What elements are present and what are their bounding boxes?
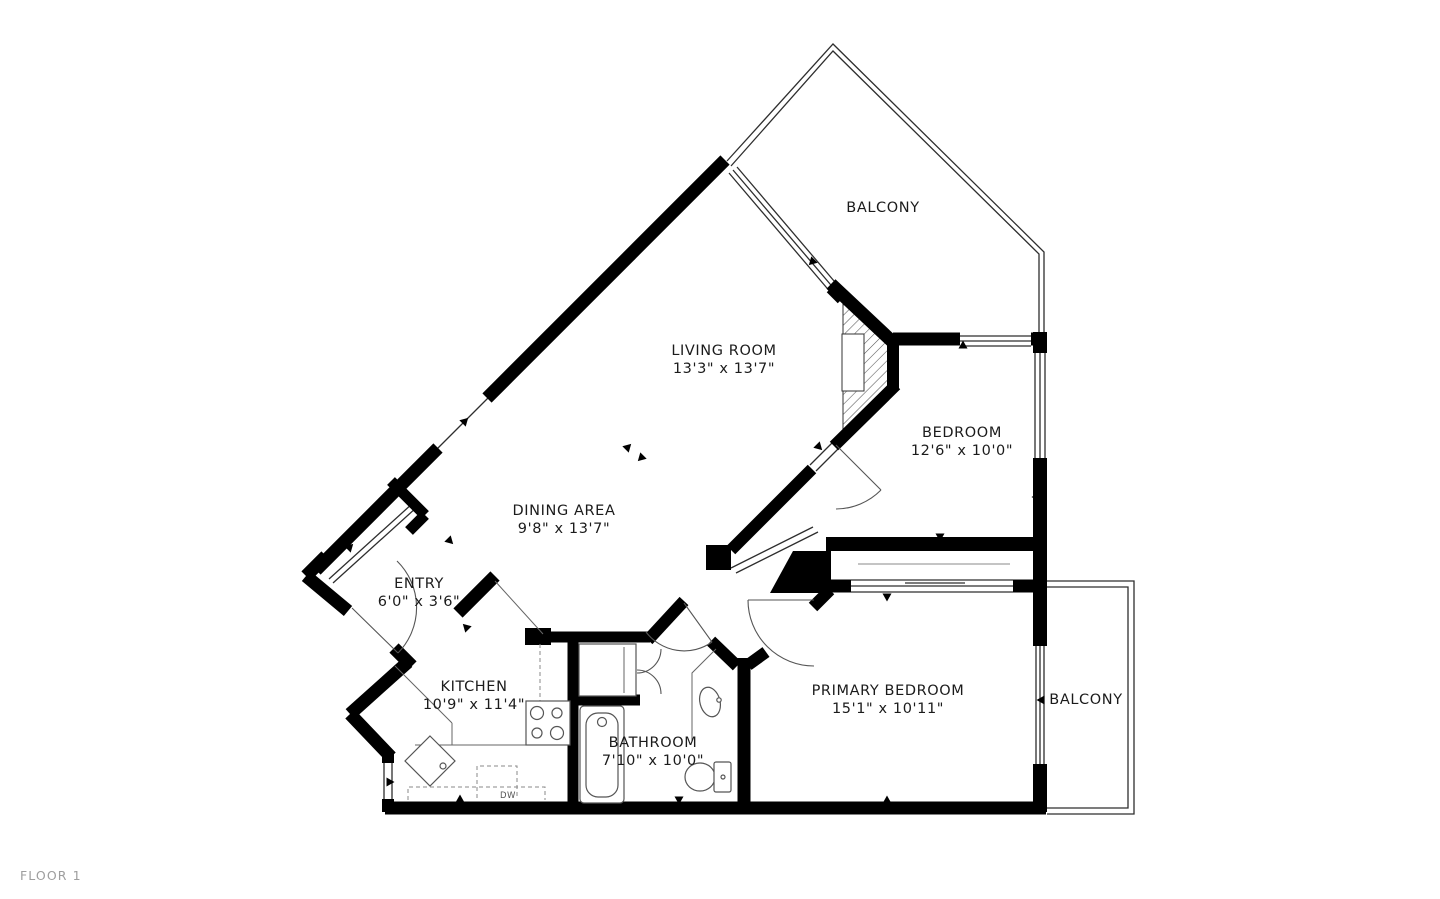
room-label-living-room: LIVING ROOM xyxy=(671,343,776,359)
room-dims-living-room: 13'3" x 13'7" xyxy=(673,361,775,377)
floor-plan-page: DW BALCONY LIVIN xyxy=(0,0,1440,899)
room-dims-kitchen: 10'9" x 11'4" xyxy=(423,697,525,713)
floor-plan-svg: DW BALCONY LIVIN xyxy=(0,0,1440,899)
dishwasher-label: DW xyxy=(500,791,516,801)
room-label-primary-bedroom: PRIMARY BEDROOM xyxy=(812,683,965,699)
room-label-dining-area: DINING AREA xyxy=(513,503,616,519)
room-dims-entry: 6'0" x 3'6" xyxy=(378,594,461,610)
laundry-closet xyxy=(579,644,636,696)
room-label-bathroom: BATHROOM xyxy=(609,735,698,751)
room-dims-bedroom: 12'6" x 10'0" xyxy=(911,443,1013,459)
floor-label: FLOOR 1 xyxy=(20,868,82,883)
bathroom-closet-doors xyxy=(637,649,661,694)
room-dims-bathroom: 7'10" x 10'0" xyxy=(602,753,704,769)
kitchen-sink xyxy=(405,736,455,786)
balcony-top-outline xyxy=(727,44,1044,338)
bedroom-door xyxy=(836,445,881,509)
room-label-entry: ENTRY xyxy=(394,576,444,592)
room-dims-primary-bedroom: 15'1" x 10'11" xyxy=(832,701,944,717)
room-label-balcony-right: BALCONY xyxy=(1049,692,1122,708)
room-label-bedroom: BEDROOM xyxy=(922,425,1002,441)
bathroom-fixtures xyxy=(579,644,731,803)
room-label-kitchen: KITCHEN xyxy=(440,679,507,695)
room-dims-dining-area: 9'8" x 13'7" xyxy=(518,521,610,537)
fireplace-firebox xyxy=(842,334,864,391)
room-label-balcony-top: BALCONY xyxy=(846,200,919,216)
